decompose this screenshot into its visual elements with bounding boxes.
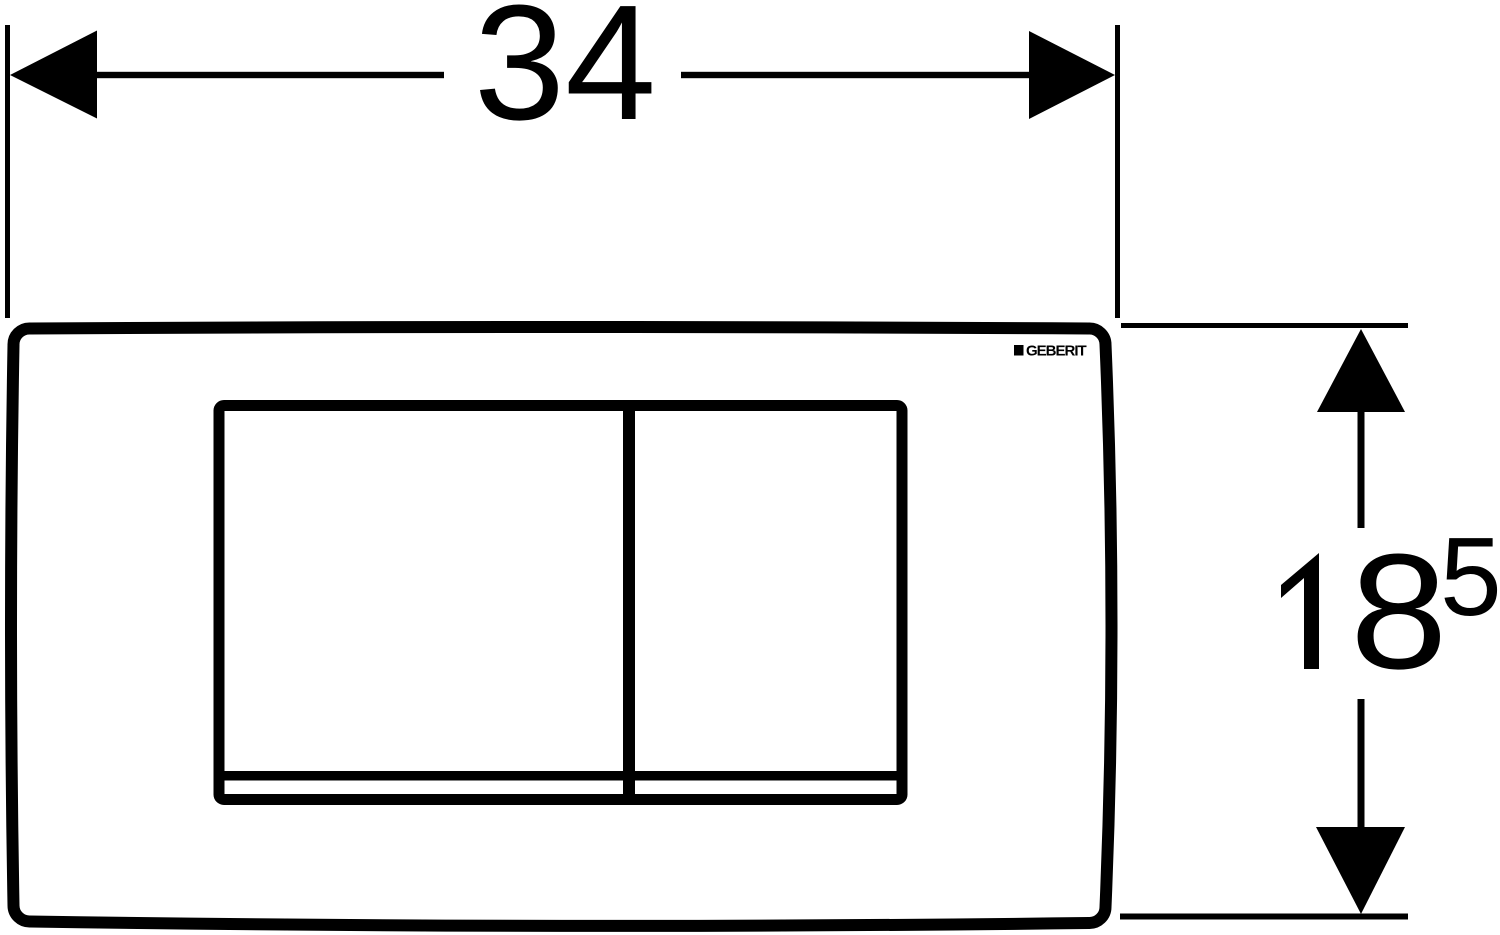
svg-text:8: 8 [1350, 519, 1448, 702]
svg-text:GEBERIT: GEBERIT [1026, 343, 1087, 360]
svg-text:34: 34 [474, 0, 656, 154]
svg-text:5: 5 [1440, 515, 1500, 639]
